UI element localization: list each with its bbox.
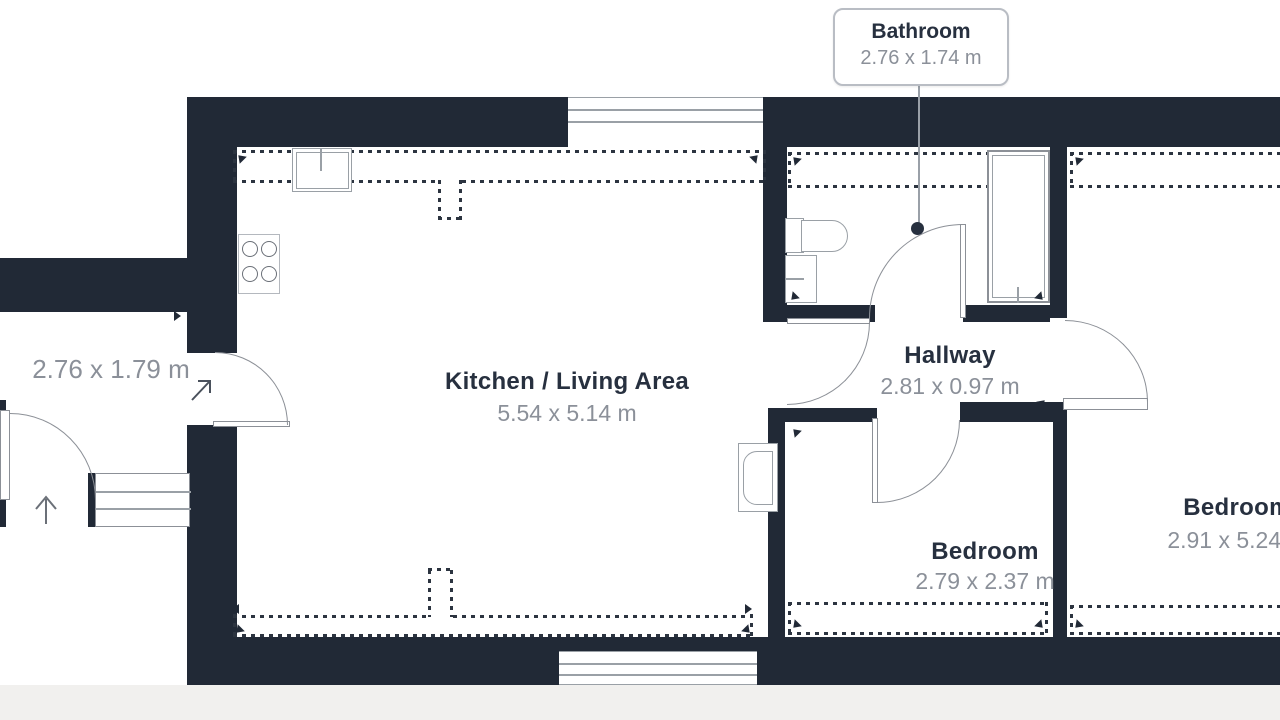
dashed-line bbox=[462, 180, 766, 183]
wall-entry-jamb-bottom bbox=[0, 500, 6, 527]
toilet-bowl-icon bbox=[801, 220, 848, 252]
shower-inner bbox=[992, 155, 1045, 298]
kitchen-sink-inner bbox=[296, 152, 349, 189]
dashed-line bbox=[459, 180, 462, 220]
room-dims-bedroom1: 2.79 x 2.37 m bbox=[885, 568, 1085, 595]
entry-door-leaf bbox=[0, 410, 10, 500]
dashed-line bbox=[438, 180, 441, 220]
entry-door-arc bbox=[10, 413, 96, 500]
room-label-hallway: Hallway bbox=[850, 342, 1050, 370]
dashed-line bbox=[1070, 605, 1280, 608]
outside-ground bbox=[0, 685, 1280, 720]
window-bottom bbox=[559, 651, 757, 685]
room-dims-hallway: 2.81 x 0.97 m bbox=[850, 373, 1050, 400]
bathroom-door-arc bbox=[869, 224, 963, 318]
wall-bathroom-east bbox=[1050, 147, 1067, 318]
room-dims-kitchen: 5.54 x 5.14 m bbox=[367, 400, 767, 427]
wall-bedroom-divider bbox=[1053, 415, 1067, 637]
room-dims-entrance: 2.76 x 1.79 m bbox=[11, 354, 211, 385]
tap-icon bbox=[320, 149, 322, 171]
floor-plan: Kitchen / Living Area 5.54 x 5.14 m Hall… bbox=[0, 0, 1280, 720]
dashed-line bbox=[1070, 185, 1280, 188]
shower-icon bbox=[987, 150, 1050, 303]
hob-burner bbox=[261, 266, 277, 282]
up-arrow-icon bbox=[28, 492, 64, 531]
bedroom1-door-arc bbox=[877, 420, 960, 503]
room-label-kitchen: Kitchen / Living Area bbox=[367, 368, 767, 396]
window-pane-line bbox=[568, 121, 763, 123]
corner-marker bbox=[174, 311, 186, 321]
radiator-inner bbox=[743, 451, 773, 505]
stair-tread-line bbox=[96, 491, 191, 493]
window-pane-line bbox=[568, 109, 763, 111]
kitchen-sink-icon bbox=[292, 148, 352, 192]
stair-tread-line bbox=[96, 508, 191, 510]
hob-icon bbox=[238, 234, 280, 294]
shower-drain-line bbox=[1017, 287, 1019, 303]
hob-burner bbox=[242, 266, 258, 282]
corner-marker bbox=[227, 604, 239, 614]
dashed-line bbox=[788, 632, 1048, 635]
dashed-line bbox=[1070, 632, 1280, 635]
wall-porch-top bbox=[0, 258, 187, 312]
radiator-icon bbox=[738, 443, 778, 512]
room-dims-bedroom2: 2.91 x 5.24 m bbox=[1137, 527, 1280, 554]
callout-leader-dot bbox=[911, 222, 924, 235]
dashed-line bbox=[233, 615, 428, 618]
dashed-line bbox=[453, 615, 753, 618]
window-pane-line bbox=[559, 663, 757, 665]
bathroom-callout[interactable]: Bathroom 2.76 x 1.74 m bbox=[833, 8, 1009, 86]
bedroom2-door-arc bbox=[1065, 320, 1148, 402]
callout-leader-line bbox=[918, 82, 920, 228]
dashed-line bbox=[428, 570, 431, 617]
dashed-line bbox=[1070, 152, 1280, 155]
room-label-bedroom1: Bedroom bbox=[885, 538, 1085, 566]
corner-marker bbox=[745, 604, 757, 614]
window-pane-line bbox=[559, 674, 757, 676]
dashed-line bbox=[788, 602, 1048, 605]
wall-bathroom-south-right bbox=[963, 305, 1050, 322]
wall-west-upper bbox=[187, 97, 237, 353]
hob-burner bbox=[242, 241, 258, 257]
dashed-line bbox=[233, 634, 753, 637]
room-label-bedroom2: Bedroom bbox=[1137, 494, 1280, 522]
callout-title: Bathroom bbox=[835, 20, 1007, 44]
corner-marker bbox=[786, 422, 802, 438]
dashed-line bbox=[450, 570, 453, 617]
basin-line bbox=[786, 278, 804, 280]
hob-burner bbox=[261, 241, 277, 257]
stairs bbox=[95, 473, 190, 527]
wall-hallway-south-right bbox=[960, 402, 1067, 422]
wall-kitchen-bathroom-divider bbox=[763, 147, 787, 322]
porch-kitchen-door-arc bbox=[215, 352, 288, 425]
dashed-line bbox=[438, 217, 462, 220]
dashed-line bbox=[428, 568, 453, 571]
callout-dims: 2.76 x 1.74 m bbox=[835, 47, 1007, 70]
window-top bbox=[568, 97, 763, 147]
